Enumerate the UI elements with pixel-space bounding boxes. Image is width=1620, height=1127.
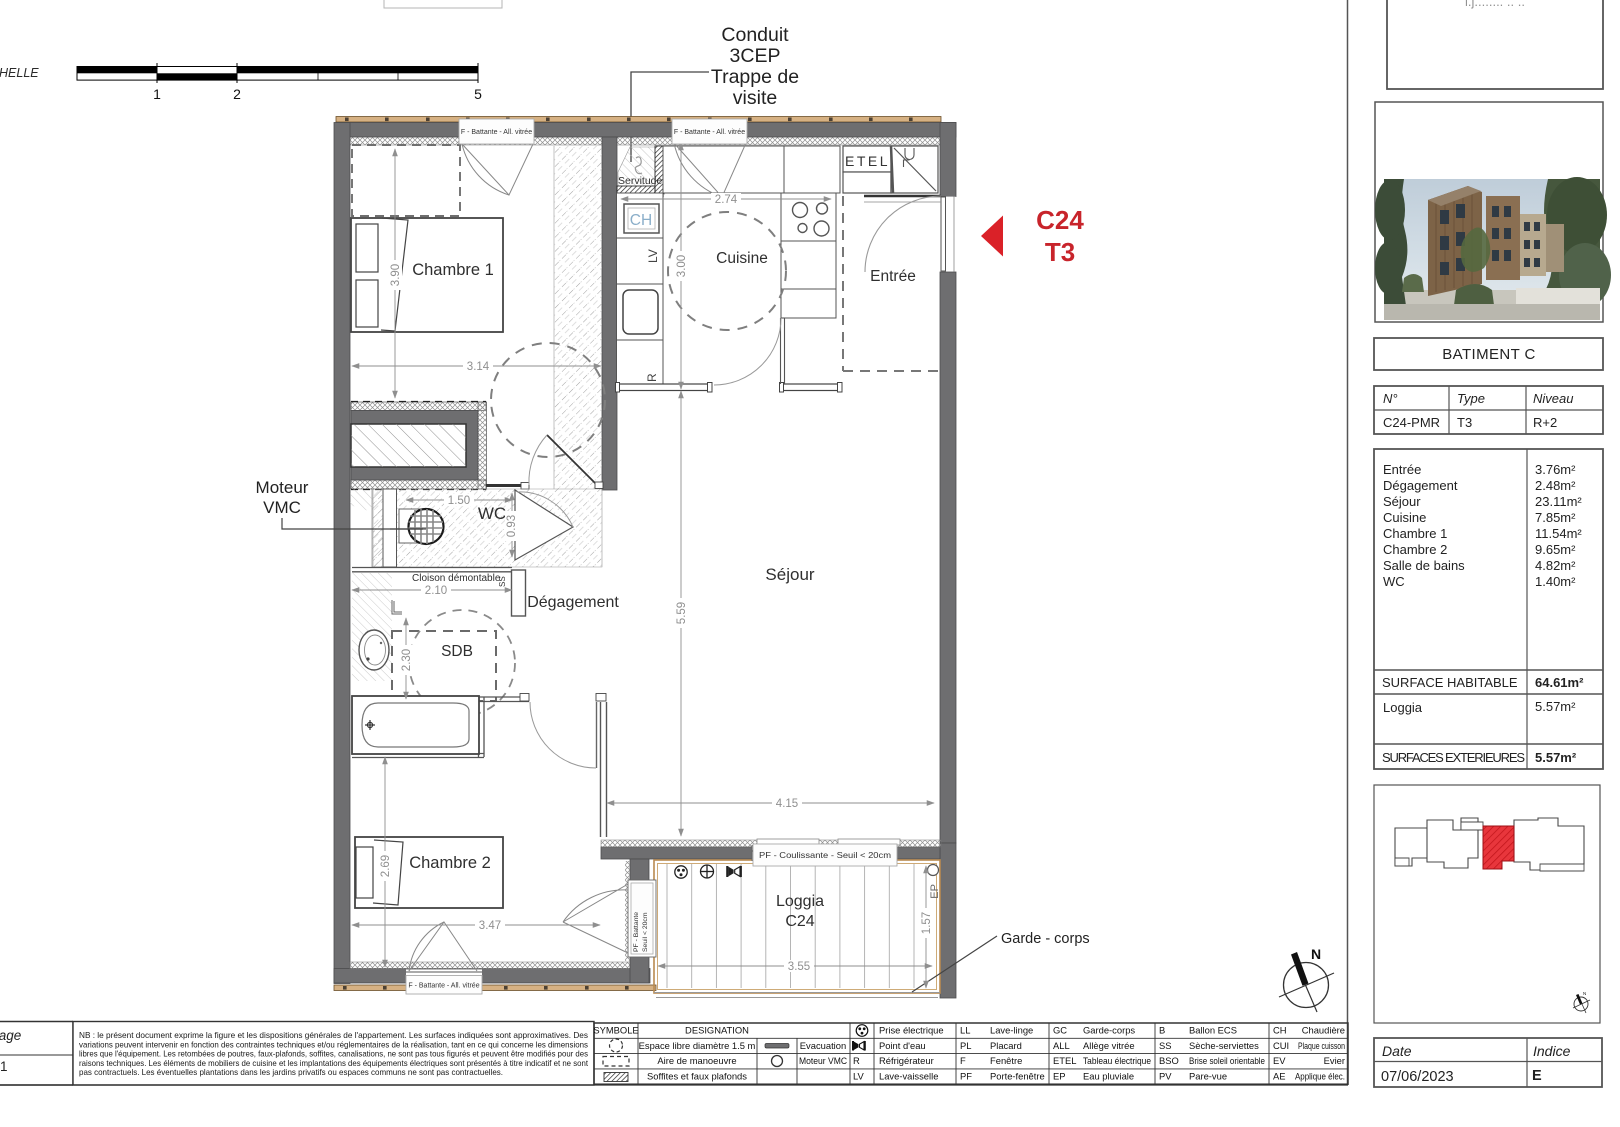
svg-text:DESIGNATION: DESIGNATION <box>685 1025 749 1036</box>
svg-text:BATIMENT C: BATIMENT C <box>1442 346 1535 363</box>
svg-text:LV: LV <box>853 1070 865 1081</box>
svg-text:3.14: 3.14 <box>467 361 490 373</box>
svg-text:PV: PV <box>1159 1070 1172 1081</box>
svg-text:EP: EP <box>929 884 941 899</box>
svg-text:C24: C24 <box>1036 205 1084 235</box>
svg-text:SURFACES EXTERIEURES: SURFACES EXTERIEURES <box>1382 750 1525 765</box>
svg-text:SS: SS <box>1159 1040 1172 1051</box>
svg-text:C24: C24 <box>785 913 814 930</box>
svg-text:1.50: 1.50 <box>448 495 470 507</box>
svg-text:Type: Type <box>1457 391 1485 406</box>
svg-text:1: 1 <box>0 1059 8 1074</box>
svg-text:07/06/2023: 07/06/2023 <box>1381 1069 1454 1085</box>
svg-text:Etage: Etage <box>0 1028 21 1043</box>
svg-text:Trappe de: Trappe de <box>711 66 799 88</box>
svg-text:R: R <box>853 1055 860 1066</box>
svg-text:F - Battante - All. vitrée: F - Battante - All. vitrée <box>674 129 745 136</box>
svg-text:3.76m²: 3.76m² <box>1535 462 1576 477</box>
svg-text:B: B <box>1159 1025 1165 1036</box>
svg-text:Tableau électrique: Tableau électrique <box>1083 1055 1151 1066</box>
svg-text:ETEL: ETEL <box>1053 1055 1076 1066</box>
svg-text:AE: AE <box>1273 1070 1286 1081</box>
svg-text:Conduit: Conduit <box>721 24 789 46</box>
svg-text:Garde - corps: Garde - corps <box>1001 931 1090 947</box>
svg-text:WC: WC <box>1383 574 1405 589</box>
svg-text:0.93: 0.93 <box>506 515 518 537</box>
svg-text:visite: visite <box>733 87 777 109</box>
svg-text:PL: PL <box>960 1040 971 1051</box>
svg-text:3.90: 3.90 <box>390 264 402 286</box>
svg-text:F - Battante - All. vitrée: F - Battante - All. vitrée <box>461 129 532 136</box>
svg-text:Porte-fenêtre: Porte-fenêtre <box>990 1070 1045 1081</box>
svg-text:N: N <box>1583 991 1586 996</box>
svg-text:R: R <box>645 373 659 382</box>
svg-text:Cuisine: Cuisine <box>1383 510 1426 525</box>
svg-text:CH: CH <box>1273 1025 1287 1036</box>
svg-text:PF - Battante: PF - Battante <box>633 912 640 952</box>
svg-text:C24-PMR: C24-PMR <box>1383 415 1440 430</box>
svg-text:3CEP: 3CEP <box>730 45 781 67</box>
svg-text:Chambre 1: Chambre 1 <box>1383 526 1447 541</box>
svg-text:Dégagement: Dégagement <box>527 594 619 611</box>
svg-text:2: 2 <box>233 86 241 102</box>
svg-text:Date: Date <box>1382 1043 1412 1059</box>
svg-text:T3: T3 <box>1045 237 1075 267</box>
svg-text:LL: LL <box>960 1025 970 1036</box>
svg-text:BSO: BSO <box>1159 1055 1179 1066</box>
svg-text:9.65m²: 9.65m² <box>1535 542 1576 557</box>
svg-text:l.j........ .. ..: l.j........ .. .. <box>1465 0 1525 9</box>
svg-text:N: N <box>1311 946 1321 962</box>
svg-text:Placard: Placard <box>990 1040 1022 1051</box>
svg-text:F: F <box>960 1055 966 1066</box>
svg-text:CHELLE: CHELLE <box>0 66 39 80</box>
svg-text:1: 1 <box>153 86 161 102</box>
svg-text:2.48m²: 2.48m² <box>1535 478 1576 493</box>
svg-text:4.82m²: 4.82m² <box>1535 558 1576 573</box>
svg-text:Cuisine: Cuisine <box>716 250 768 267</box>
svg-text:Prise électrique: Prise électrique <box>879 1025 944 1036</box>
svg-text:Fenêtre: Fenêtre <box>990 1055 1022 1066</box>
svg-text:Point d'eau: Point d'eau <box>879 1040 926 1051</box>
svg-text:Aire de manoeuvre: Aire de manoeuvre <box>657 1055 736 1066</box>
svg-text:SYMBOLE: SYMBOLE <box>593 1025 638 1036</box>
svg-text:Sèche-serviettes: Sèche-serviettes <box>1189 1040 1259 1051</box>
svg-text:Loggia: Loggia <box>1383 700 1423 715</box>
svg-text:T3: T3 <box>1457 415 1472 430</box>
svg-text:7.85m²: 7.85m² <box>1535 510 1576 525</box>
svg-text:Chaudière: Chaudière <box>1302 1025 1345 1036</box>
svg-text:LV: LV <box>646 249 660 263</box>
svg-text:pas contractuels. Les éventuel: pas contractuels. Les éventuelles planta… <box>79 1067 503 1077</box>
svg-text:Entrée: Entrée <box>1383 462 1421 477</box>
svg-text:Espace libre diamètre 1.5 m: Espace libre diamètre 1.5 m <box>639 1040 756 1051</box>
svg-text:5.59: 5.59 <box>676 602 688 624</box>
svg-text:Garde-corps: Garde-corps <box>1083 1025 1135 1036</box>
svg-text:5.57m²: 5.57m² <box>1535 699 1576 714</box>
svg-text:Niveau: Niveau <box>1533 391 1573 406</box>
svg-text:Soffites et faux plafonds: Soffites et faux plafonds <box>647 1070 747 1081</box>
svg-text:3.55: 3.55 <box>788 961 810 973</box>
svg-text:64.61m²: 64.61m² <box>1535 675 1584 690</box>
svg-text:Evacuation: Evacuation <box>800 1040 846 1051</box>
svg-text:SDB: SDB <box>441 643 473 660</box>
svg-text:WC: WC <box>478 504 506 523</box>
svg-text:2.30: 2.30 <box>401 649 413 671</box>
svg-text:Séjour: Séjour <box>1383 494 1421 509</box>
svg-text:Réfrigérateur: Réfrigérateur <box>879 1055 934 1066</box>
svg-text:N°: N° <box>1383 391 1398 406</box>
svg-text:1.40m²: 1.40m² <box>1535 574 1576 589</box>
svg-text:Lave-vaisselle: Lave-vaisselle <box>879 1070 938 1081</box>
svg-text:Indice: Indice <box>1533 1043 1571 1059</box>
svg-text:CH: CH <box>630 212 652 229</box>
svg-text:Loggia: Loggia <box>776 893 824 910</box>
svg-text:EP: EP <box>1053 1070 1066 1081</box>
svg-text:Entrée: Entrée <box>870 268 916 285</box>
svg-text:VMC: VMC <box>263 498 301 517</box>
svg-text:PF - Coulissante - Seuil < 20c: PF - Coulissante - Seuil < 20cm <box>759 850 891 860</box>
svg-text:Allège vitrée: Allège vitrée <box>1083 1040 1135 1051</box>
svg-text:Applique élec.: Applique élec. <box>1295 1070 1345 1081</box>
svg-text:SS: SS <box>498 576 507 587</box>
svg-text:Cloison démontable: Cloison démontable <box>412 573 501 584</box>
svg-text:R+2: R+2 <box>1533 415 1557 430</box>
svg-text:5: 5 <box>474 86 482 102</box>
svg-text:Chambre 2: Chambre 2 <box>1383 542 1447 557</box>
svg-text:4.15: 4.15 <box>776 798 798 810</box>
svg-text:Evier: Evier <box>1324 1055 1345 1066</box>
svg-text:2.74: 2.74 <box>715 194 738 206</box>
svg-text:CUI: CUI <box>1273 1040 1289 1051</box>
svg-text:2.10: 2.10 <box>425 585 447 597</box>
svg-text:Moteur: Moteur <box>256 478 309 497</box>
svg-text:EV: EV <box>1273 1055 1286 1066</box>
svg-text:5.57m²: 5.57m² <box>1535 750 1577 765</box>
svg-text:PF: PF <box>960 1070 972 1081</box>
svg-text:2.69: 2.69 <box>380 855 392 877</box>
svg-text:Pare-vue: Pare-vue <box>1189 1070 1227 1081</box>
svg-text:Eau pluviale: Eau pluviale <box>1083 1070 1134 1081</box>
svg-text:3.00: 3.00 <box>676 255 688 277</box>
svg-text:Salle de bains: Salle de bains <box>1383 558 1465 573</box>
svg-text:Ballon ECS: Ballon ECS <box>1189 1025 1237 1036</box>
svg-text:11.54m²: 11.54m² <box>1535 526 1582 541</box>
svg-text:Servitude: Servitude <box>618 175 663 187</box>
svg-text:ETEL: ETEL <box>845 153 890 169</box>
svg-text:3.47: 3.47 <box>479 920 501 932</box>
svg-text:F - Battante - All. vitrée: F - Battante - All. vitrée <box>408 983 479 990</box>
svg-text:Chambre 1: Chambre 1 <box>412 261 494 279</box>
svg-text:23.11m²: 23.11m² <box>1535 494 1582 509</box>
svg-text:Moteur VMC: Moteur VMC <box>799 1055 847 1066</box>
svg-text:Brise soleil orientable: Brise soleil orientable <box>1189 1055 1265 1066</box>
svg-text:Dégagement: Dégagement <box>1383 478 1458 493</box>
svg-text:Chambre 2: Chambre 2 <box>409 854 491 872</box>
svg-text:SURFACE HABITABLE: SURFACE HABITABLE <box>1382 675 1518 690</box>
svg-text:GC: GC <box>1053 1025 1067 1036</box>
svg-text:E: E <box>1532 1068 1542 1084</box>
svg-text:Seuil < 20cm: Seuil < 20cm <box>642 912 649 952</box>
svg-text:ALL: ALL <box>1053 1040 1070 1051</box>
svg-text:Séjour: Séjour <box>765 565 814 584</box>
svg-text:Lave-linge: Lave-linge <box>990 1025 1033 1036</box>
svg-text:Plaque cuisson: Plaque cuisson <box>1298 1040 1345 1051</box>
svg-text:1.57: 1.57 <box>921 912 933 934</box>
